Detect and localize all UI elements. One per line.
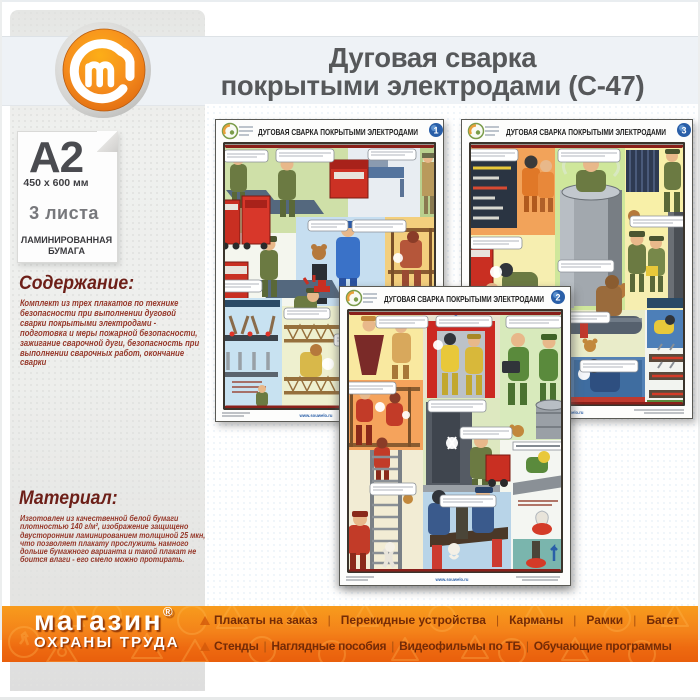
svg-text:3: 3 [681,126,686,136]
svg-text:2: 2 [555,293,560,303]
svg-text:www.souwelo.ru: www.souwelo.ru [435,577,469,582]
svg-text:ДУГОВАЯ СВАРКА ПОКРЫТЫМИ ЭЛЕКТ: ДУГОВАЯ СВАРКА ПОКРЫТЫМИ ЭЛЕКТРОДАМИ [506,127,666,137]
svg-text:ДУГОВАЯ СВАРКА ПОКРЫТЫМИ ЭЛЕКТ: ДУГОВАЯ СВАРКА ПОКРЫТЫМИ ЭЛЕКТРОДАМИ [258,127,418,137]
svg-text:ДУГОВАЯ СВАРКА ПОКРЫТЫМИ ЭЛЕКТ: ДУГОВАЯ СВАРКА ПОКРЫТЫМИ ЭЛЕКТРОДАМИ [384,294,544,304]
svg-text:1: 1 [433,126,438,136]
svg-text:www.souwelo.ru: www.souwelo.ru [299,413,333,418]
